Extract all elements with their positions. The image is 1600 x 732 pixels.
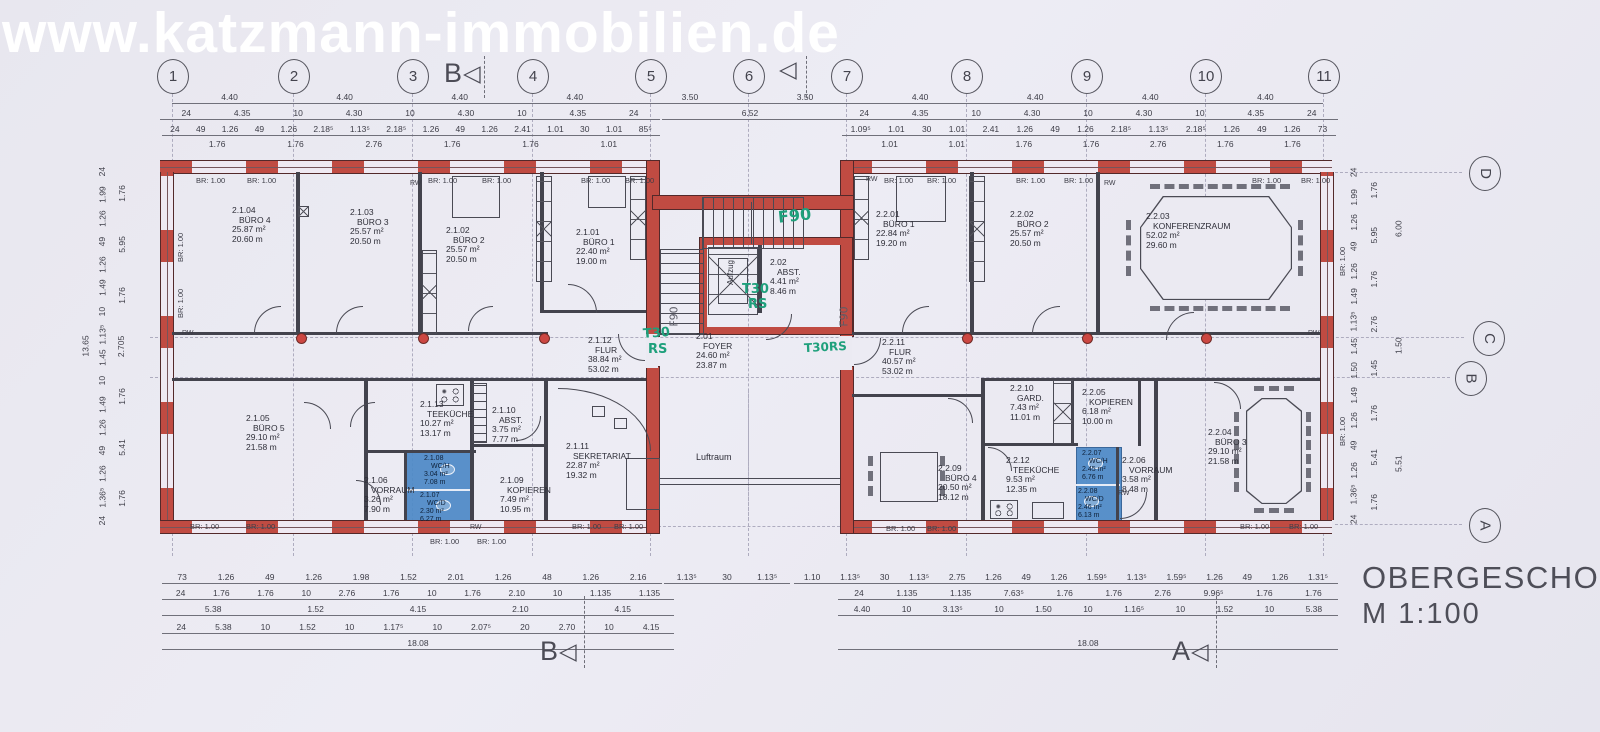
wall-window — [160, 160, 658, 174]
drawing-scale: M 1:100 — [1362, 598, 1481, 631]
section-arrow-icon: ◁ — [559, 640, 577, 663]
section-arrow-icon: ◁ — [1191, 640, 1209, 663]
dimension-value: 4.40 — [853, 604, 872, 614]
room-perimeter: 20.50 m — [446, 255, 485, 265]
section-cut-line — [584, 596, 585, 668]
dimension-value: 1.59⁵ — [1086, 572, 1108, 582]
dimension-chain: 4.40103.13⁵101.50101.16⁵101.52105.38 — [838, 604, 1338, 616]
room-perimeter: 18.12 m — [938, 493, 977, 503]
dimension-value: 24 — [90, 166, 113, 177]
dimension-value: 2.41 — [982, 124, 1001, 134]
room-name: WC/D — [427, 500, 446, 508]
wall-window — [1320, 172, 1334, 520]
chairs — [1254, 386, 1294, 391]
handwritten-annotation: RS — [748, 297, 767, 312]
dimension-value: 1.26 — [90, 465, 113, 484]
void-dashed-line — [658, 526, 840, 527]
dimension-value: 3.13⁵ — [942, 604, 964, 614]
room-perimeter: 20.50 m — [350, 237, 389, 247]
fire-rating-label: BR: 1.00 — [1338, 247, 1347, 276]
dimension-value: 1.76 — [286, 139, 305, 149]
wall — [646, 160, 660, 337]
fire-rating-label: BR: 1.00 — [886, 524, 915, 533]
column-dot — [539, 333, 550, 344]
drawing-title: OBERGESCHOSS — [1362, 560, 1600, 596]
dimension-value: 1.76 — [382, 588, 401, 598]
dimension-value: 1.26 — [1015, 124, 1034, 134]
dimension-value: 1.76 — [97, 286, 148, 305]
dimension-value: 1.01 — [947, 139, 966, 149]
dimension-value: 2.07⁵ — [470, 622, 492, 632]
dimension-value: 1.26 — [1076, 124, 1095, 134]
room-perimeter: 7.08 m — [424, 479, 450, 487]
dimension-value: 1.50 — [1339, 337, 1456, 356]
dimension-value: 1.26 — [221, 124, 240, 134]
dimension-value: 1.26 — [494, 572, 513, 582]
dimension-value: 5.41 — [97, 438, 148, 457]
room-perimeter: 6.13 m — [1078, 512, 1104, 520]
dimension-value: 1.01 — [605, 124, 624, 134]
dimension-value: 24 — [853, 588, 864, 598]
fire-rating-label: BR: 1.00 — [1064, 176, 1093, 185]
watermark: www.katzmann-immobilien.de — [2, 0, 840, 66]
desk — [626, 458, 660, 510]
room-area: 3.04 m² — [424, 471, 450, 479]
wall — [852, 394, 984, 397]
dimension-value: 1.09⁵ — [850, 124, 872, 134]
dimension-value: 30 — [879, 572, 890, 582]
fire-rating-label: BR: 1.00 — [581, 176, 610, 185]
dimension-value: 10 — [970, 108, 981, 118]
fire-rating-label: BR: 1.00 — [176, 233, 185, 262]
room-name: WC/H — [1089, 458, 1108, 466]
dimension-value: 10 — [1264, 604, 1275, 614]
dimension-chain: 13.65 — [80, 170, 92, 522]
dimension-value: 2.41 — [513, 124, 532, 134]
dimension-value: 7.63⁵ — [1003, 588, 1025, 598]
dimension-value: 1.76 — [1216, 139, 1235, 149]
dimension-value: 24 — [180, 108, 191, 118]
room-perimeter: 19.20 m — [876, 239, 915, 249]
grid-row-bubble: A — [1469, 508, 1501, 543]
dimension-value: 1.76 — [1082, 139, 1101, 149]
dimension-value: 6.00 — [1339, 219, 1456, 238]
dimension-value: 1.26 — [480, 124, 499, 134]
dimension-value: 24 — [628, 108, 639, 118]
rw-label: RW — [470, 524, 482, 531]
in — [1247, 399, 1301, 503]
chair — [614, 418, 627, 429]
fire-rating-label: BR: 1.00 — [927, 524, 956, 533]
dimension-value: 1.01 — [600, 139, 619, 149]
dimension-value: 1.76 — [97, 388, 148, 407]
fire-rating-label: BR: 1.00 — [884, 176, 913, 185]
room-perimeter: 21.58 m — [246, 443, 285, 453]
dimension-value: 73 — [176, 572, 187, 582]
dimension-value: 4.15 — [642, 622, 661, 632]
wall — [981, 378, 985, 520]
dimension-value: 10 — [344, 622, 355, 632]
grid-row-letter: A — [1476, 520, 1493, 530]
dimension-value: 1.26 — [1283, 124, 1302, 134]
dimension-value: 48 — [541, 572, 552, 582]
dimension-value: 4.15 — [409, 604, 428, 614]
chairs — [1298, 220, 1303, 276]
fire-rating-label: BR: 1.00 — [176, 289, 185, 318]
dimension-value: 2.76 — [1352, 314, 1397, 333]
chairs — [1150, 306, 1290, 311]
dimension-value: 2.76 — [365, 139, 384, 149]
room-perimeter: 29.60 m — [1146, 241, 1230, 251]
floor-plan-page: www.katzmann-immobilien.de — [0, 0, 1600, 732]
room-perimeter: 11.01 m — [1010, 413, 1044, 423]
wc-divider — [1076, 484, 1120, 486]
fire-rating-label: BR: 1.00 — [247, 176, 276, 185]
dimension-value: 30 — [721, 572, 732, 582]
dimension-value: 1.26 — [422, 124, 441, 134]
wall — [368, 450, 476, 453]
dimension-value: 49 — [1256, 124, 1267, 134]
dimension-chain: 1.761.762.761.761.761.01 — [178, 139, 648, 149]
dimension-value: 24 — [1342, 514, 1367, 525]
dimension-value: 4.40 — [335, 92, 354, 102]
room-perimeter: 8.46 m — [770, 287, 801, 297]
room-perimeter: 6.76 m — [1082, 474, 1108, 482]
fire-rating-label: BR: 1.00 — [1289, 522, 1318, 531]
dimension-value: 49 — [455, 124, 466, 134]
dimension-value: 85⁵ — [638, 124, 653, 134]
room-id: 2.1.07 — [420, 492, 446, 500]
dimension-value: 10 — [1082, 604, 1093, 614]
dimension-value: 4.40 — [1026, 92, 1045, 102]
room-perimeter: 19.32 m — [566, 471, 631, 481]
dimension-value: 1.10 — [803, 572, 822, 582]
door-arc — [350, 402, 375, 427]
section-marker: A◁ — [1172, 636, 1209, 667]
fire-rating-label: BR: 1.00 — [1016, 176, 1045, 185]
dimension-value: 1.76 — [1352, 181, 1397, 200]
wall-window — [840, 160, 1332, 174]
dimension-value: 4.30 — [1023, 108, 1042, 118]
room-label: 2.2.12TEEKÜCHE9.53 m²12.35 m — [1006, 456, 1059, 494]
dimension-chain: 6.52 — [662, 108, 838, 120]
room-label: 2.1.03BÜRO 325.57 m²20.50 m — [350, 208, 389, 246]
wall — [172, 378, 646, 381]
section-cut-line — [1216, 596, 1217, 668]
dimension-value: 10 — [1082, 108, 1093, 118]
grid-row-bubble: D — [1469, 156, 1501, 191]
dimension-value: 1.26 — [280, 124, 299, 134]
room-label: 2.1.02BÜRO 225.57 m²20.50 m — [446, 226, 485, 264]
wall-symbol — [298, 206, 309, 217]
dimension-value: 10 — [603, 622, 614, 632]
dimension-value: 1.26 — [1050, 572, 1069, 582]
dimension-value: 10 — [90, 305, 113, 316]
wall — [474, 444, 546, 447]
dimension-value: 1.13⁵ — [839, 572, 861, 582]
room-label: 2.2.10GARD.7.43 m²11.01 m — [1010, 384, 1044, 422]
dimension-value: 10 — [260, 622, 271, 632]
room-label: 2.1.12FLUR38.84 m²53.02 m — [588, 336, 622, 374]
wall — [840, 366, 854, 534]
dimension-value: 2.01 — [447, 572, 466, 582]
fire-rating-label: BR: 1.00 — [1301, 176, 1330, 185]
dimension-value: 5.38 — [1305, 604, 1324, 614]
stove-icon — [990, 500, 1018, 519]
room-perimeter: 7.77 m — [492, 435, 523, 445]
wall — [296, 172, 300, 334]
room-label: 2.1.11SEKRETARIAT22.87 m²19.32 m — [566, 442, 631, 480]
dimension-value: 1.76 — [1352, 270, 1397, 289]
column-dot — [962, 333, 973, 344]
section-letter: B — [540, 636, 558, 667]
room-label: 2.2.04BÜRO 329.10 m²21.58 m — [1208, 428, 1247, 466]
chairs — [1254, 508, 1294, 513]
grid-row-bubble: B — [1455, 361, 1487, 396]
wall — [1096, 172, 1100, 334]
dimension-value: 1.52 — [298, 622, 317, 632]
gallery-edge — [658, 478, 840, 485]
elevator-label: Aufzug — [726, 260, 735, 285]
door-arc — [1166, 312, 1194, 340]
sink — [1032, 502, 1064, 519]
door-arc — [854, 338, 881, 365]
dimension-value: 24 — [169, 124, 180, 134]
shaft — [854, 176, 869, 260]
dimension-value: 2.18⁵ — [385, 124, 407, 134]
dimension-value: 1.13⁵ — [756, 572, 778, 582]
room-label: 2.1.13TEEKÜCHE10.27 m²13.17 m — [420, 400, 473, 438]
dimension-value: 1.52 — [1216, 604, 1235, 614]
door-arc — [1032, 306, 1060, 334]
dimension-value: 1.13⁵ — [1147, 124, 1169, 134]
room-perimeter: 12.35 m — [1006, 485, 1059, 495]
dimension-value: 49 — [264, 572, 275, 582]
dimension-value: 5.95 — [97, 235, 148, 254]
dimension-chain: 241.1351.1357.63⁵1.761.762.769.96⁵1.761.… — [838, 588, 1338, 600]
dimension-value: 1.01 — [948, 124, 967, 134]
dimension-value: 2.76 — [338, 588, 357, 598]
fire-rating-label: BR: 1.00 — [1240, 522, 1269, 531]
dimension-value: 10 — [300, 588, 311, 598]
dimension-value: 2.76 — [1153, 588, 1172, 598]
room-label: 2.02ABST.4.41 m²8.46 m — [770, 258, 801, 296]
dimension-value: 4.35 — [233, 108, 252, 118]
dimension-value: 1.76 — [256, 588, 275, 598]
dimension-chain: 18.08 — [162, 638, 674, 650]
dimension-chain: 244.35104.30104.30104.3524 — [160, 108, 660, 120]
dimension-value: 1.26 — [1271, 572, 1290, 582]
room-id: 2.1.08 — [424, 455, 450, 463]
dimension-value: 2.16 — [629, 572, 648, 582]
dimension-value: 4.35 — [911, 108, 930, 118]
wall — [1116, 447, 1119, 520]
grid-row-letter: C — [1481, 333, 1498, 344]
room-perimeter: 23.87 m — [696, 361, 732, 371]
door-arc — [336, 306, 363, 333]
room-area: 2.45 m² — [1082, 466, 1108, 474]
shaft — [1053, 380, 1073, 444]
rw-label: RW — [182, 330, 194, 337]
dimension-chain: 5.381.524.152.104.15 — [162, 604, 674, 616]
dimension-chain: 4.404.404.404.403.503.504.404.404.404.40 — [172, 92, 1323, 104]
dimension-value: 1.26 — [582, 572, 601, 582]
dimension-value: 1.26 — [90, 255, 113, 274]
dimension-value: 4.40 — [911, 92, 930, 102]
dimension-chain: 1.09⁵1.01301.012.411.26491.262.18⁵1.13⁵2… — [842, 124, 1336, 136]
dimension-chain: 18.08 — [838, 638, 1338, 650]
fire-rating-label: BR: 1.00 — [1338, 417, 1347, 446]
dimension-value: 5.38 — [214, 622, 233, 632]
rw-label: RW — [1104, 180, 1116, 187]
dimension-value: 1.26 — [1222, 124, 1241, 134]
dimension-value: 49 — [195, 124, 206, 134]
dimension-value: 10 — [1194, 108, 1205, 118]
dimension-value: 1.76 — [97, 489, 148, 508]
room-label: 2.2.07WC/H2.45 m²6.76 m — [1082, 450, 1108, 482]
dimension-value: 1.50 — [1034, 604, 1053, 614]
dimension-value: 5.38 — [204, 604, 223, 614]
section-letter: A — [1172, 636, 1190, 667]
fire-rating-label: BR: 1.00 — [246, 522, 275, 531]
dimension-value: 1.76 — [1255, 588, 1274, 598]
dimension-value: 10 — [1175, 604, 1186, 614]
room-perimeter: 20.60 m — [232, 235, 271, 245]
dimension-chain: 1.011.011.761.762.761.761.76 — [856, 139, 1326, 149]
door-arc — [304, 402, 331, 429]
handwritten-annotation: T30 — [742, 282, 769, 297]
dimension-value: 1.45 — [1352, 359, 1397, 378]
dimension-value: 4.15 — [613, 604, 632, 614]
grid-column-bubble: 8 — [951, 59, 983, 94]
handwritten-annotation: F90 — [838, 306, 851, 326]
dimension-value: 1.76 — [1352, 403, 1397, 422]
room-perimeter: 10.00 m — [1082, 417, 1133, 427]
room-perimeter: 10.95 m — [500, 505, 551, 515]
dimension-value: 1.76 — [97, 184, 148, 203]
room-label: 2.2.11FLUR40.57 m²53.02 m — [882, 338, 916, 376]
dimension-value: 5.51 — [1339, 454, 1456, 473]
dimension-value: 24 — [175, 588, 186, 598]
dimension-value: 30 — [921, 124, 932, 134]
room-label: 2.1.06VORRAUM3.26 m²7.90 m — [364, 476, 414, 514]
dimension-value: 49 — [1020, 572, 1031, 582]
shaft — [422, 250, 437, 334]
dimension-value: 1.13⁵ — [908, 572, 930, 582]
dimension-value: 4.40 — [450, 92, 469, 102]
dimension-value: 10 — [426, 588, 437, 598]
column-dot — [418, 333, 429, 344]
handwritten-annotation: F90 — [777, 204, 812, 226]
room-label: 2.2.01BÜRO 122.84 m²19.20 m — [876, 210, 915, 248]
fire-rating-label: BR: 1.00 — [625, 176, 654, 185]
dimension-value: 1.01 — [880, 139, 899, 149]
dimension-value: 1.76 — [212, 588, 231, 598]
dimension-value: 1.01 — [546, 124, 565, 134]
dimension-chain: 244.35104.30104.30104.3524 — [838, 108, 1338, 120]
dimension-value: 1.31⁵ — [1307, 572, 1329, 582]
dimension-value: 1.135 — [895, 588, 918, 598]
dimension-value: 4.30 — [345, 108, 364, 118]
door-arc — [618, 334, 645, 361]
dimension-value: 10 — [901, 604, 912, 614]
fire-rating-label: BR: 1.00 — [572, 522, 601, 531]
dimension-value: 24 — [90, 515, 113, 526]
room-perimeter: 7.90 m — [364, 505, 414, 515]
dimension-value: 18.08 — [1076, 638, 1099, 648]
fire-rating-label: BR: 1.00 — [1252, 176, 1281, 185]
rw-label: RW — [866, 176, 878, 183]
dimension-value: 1.76 — [1055, 588, 1074, 598]
room-perimeter: 21.58 m — [1208, 457, 1247, 467]
fire-rating-label: BR: 1.00 — [482, 176, 511, 185]
column-dot — [1082, 333, 1093, 344]
dimension-value: 1.26 — [90, 209, 113, 228]
fire-rating-label: BR: 1.00 — [927, 176, 956, 185]
fire-rating-label: BR: 1.00 — [430, 537, 459, 546]
dimension-value: 10 — [404, 108, 415, 118]
dimension-value: 1.98 — [352, 572, 371, 582]
dimension-value: 1.13⁵ — [349, 124, 371, 134]
dimension-value: 1.76 — [463, 588, 482, 598]
dimension-value: 1.52 — [306, 604, 325, 614]
dimension-value: 4.40 — [566, 92, 585, 102]
dimension-value: 1.16⁵ — [1123, 604, 1145, 614]
shaft — [630, 176, 646, 260]
stairs-side — [660, 249, 704, 335]
dimension-value: 1.01 — [887, 124, 906, 134]
chairs — [868, 456, 873, 496]
wc-divider — [406, 489, 472, 491]
dimension-value: 1.52 — [399, 572, 418, 582]
dimension-value: 4.35 — [1247, 108, 1266, 118]
dimension-value: 6.52 — [741, 108, 760, 118]
room-perimeter: 53.02 m — [588, 365, 622, 375]
room-label: 2.1.01BÜRO 122.40 m²19.00 m — [576, 228, 615, 266]
fire-rating-label: BR: 1.00 — [196, 176, 225, 185]
dimension-value: 4.35 — [569, 108, 588, 118]
door-arc — [568, 284, 597, 313]
dimension-value: 1.26 — [1205, 572, 1224, 582]
dimension-value: 10 — [552, 588, 563, 598]
grid-column-bubble: 9 — [1071, 59, 1103, 94]
handwritten-annotation: T30RS — [804, 339, 847, 355]
dimension-chain: 1.101.13⁵301.13⁵2.751.26491.261.59⁵1.13⁵… — [794, 572, 1338, 584]
dimension-value: 1.26 — [304, 572, 323, 582]
door-arc — [468, 306, 493, 331]
dimension-chain: 241.761.76102.761.76101.762.10101.1351.1… — [162, 588, 674, 600]
room-label: 2.2.08WC/D2.46 m²6.13 m — [1078, 488, 1104, 520]
dimension-value: 2.10 — [511, 604, 530, 614]
dimension-value: 10 — [90, 375, 113, 386]
wall — [1138, 378, 1141, 446]
dimension-value: 1.26 — [90, 418, 113, 437]
dimension-value: 1.26 — [984, 572, 1003, 582]
handwritten-annotation: T30 — [643, 325, 671, 342]
dimension-value: 1.76 — [1015, 139, 1034, 149]
shaft — [969, 176, 985, 282]
dimension-chain: 731.26491.261.981.522.011.26481.262.16 — [162, 572, 662, 584]
room-id: 2.2.08 — [1078, 488, 1104, 496]
dimension-value: 2.18⁵ — [1110, 124, 1132, 134]
room-perimeter: 8.48 m — [1122, 485, 1172, 495]
grid-row-letter: D — [1477, 168, 1494, 179]
room-label: 2.1.07WC/D2.30 m²6.27 m — [420, 492, 446, 524]
dimension-value: 2.76 — [1149, 139, 1168, 149]
dimension-chain: 6.001.505.51 — [1392, 170, 1404, 522]
dimension-value: 2.75 — [948, 572, 967, 582]
room-label: 2.2.06VORRAUM3.58 m²8.48 m — [1122, 456, 1172, 494]
